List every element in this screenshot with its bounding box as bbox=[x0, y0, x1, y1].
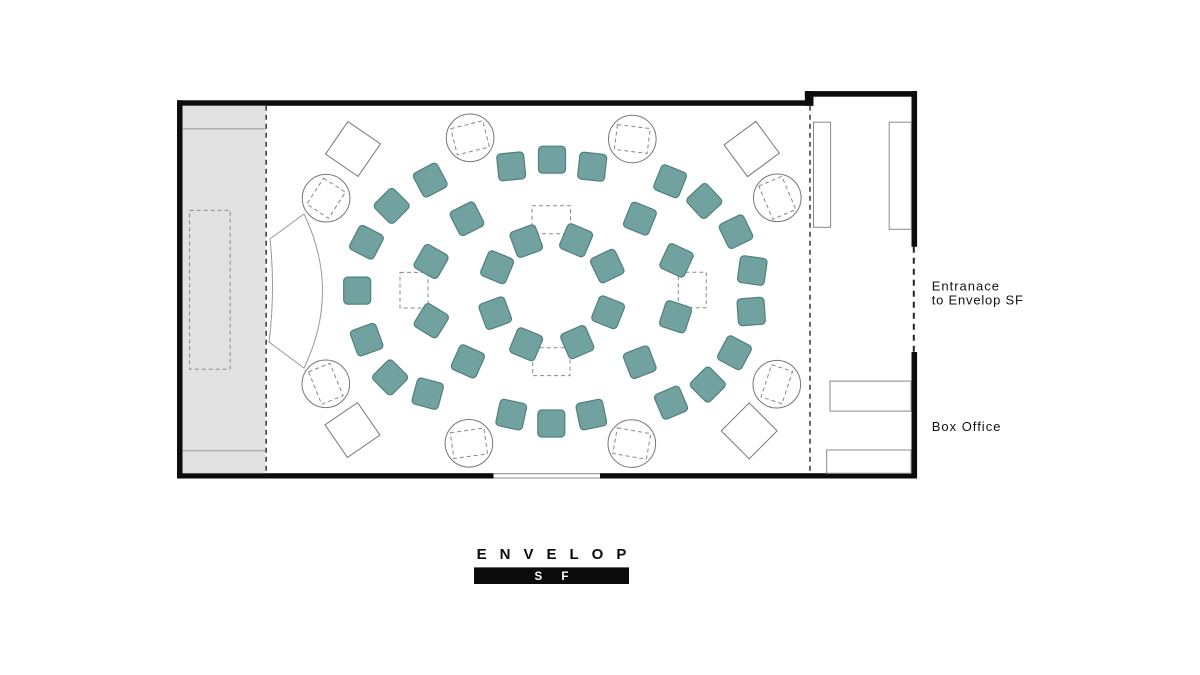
svg-text:Box Office: Box Office bbox=[932, 419, 1002, 434]
svg-text:ENVELOP: ENVELOP bbox=[477, 546, 640, 563]
svg-text:S F: S F bbox=[535, 571, 577, 583]
svg-text:to Envelop SF: to Envelop SF bbox=[932, 293, 1024, 308]
svg-text:Entranace: Entranace bbox=[932, 279, 1000, 294]
